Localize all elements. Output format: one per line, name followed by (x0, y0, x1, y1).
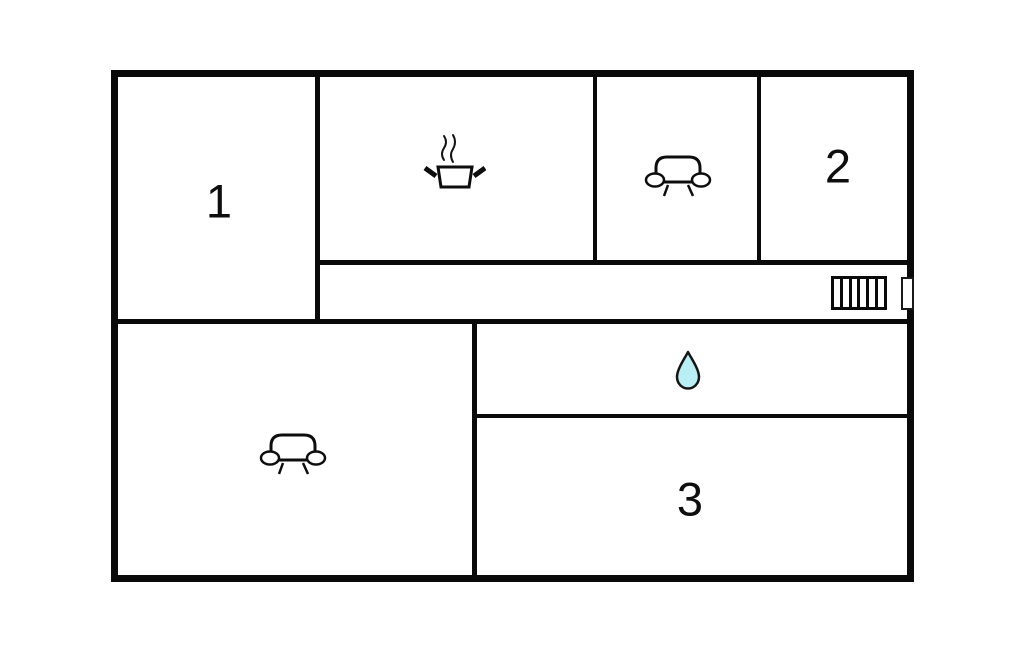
door-icon (901, 277, 914, 310)
room-1-label: 1 (206, 178, 232, 225)
water-drop-icon (673, 350, 703, 392)
stairs-icon (831, 276, 887, 310)
stair-step (878, 279, 884, 307)
cooking-pot-icon (406, 132, 486, 190)
steam-icon (451, 135, 455, 162)
sofa-icon (259, 430, 327, 476)
hallway-area (320, 265, 907, 319)
stair-step (834, 279, 840, 307)
stair-step (860, 279, 866, 307)
room-2-label: 2 (825, 143, 851, 190)
stair-step (869, 279, 875, 307)
stair-step (843, 279, 849, 307)
floor-plan: 1 2 3 (0, 0, 1024, 652)
steam-icon (442, 136, 446, 160)
stair-step (852, 279, 858, 307)
sofa-icon (644, 152, 712, 198)
room-3-label: 3 (677, 476, 703, 523)
